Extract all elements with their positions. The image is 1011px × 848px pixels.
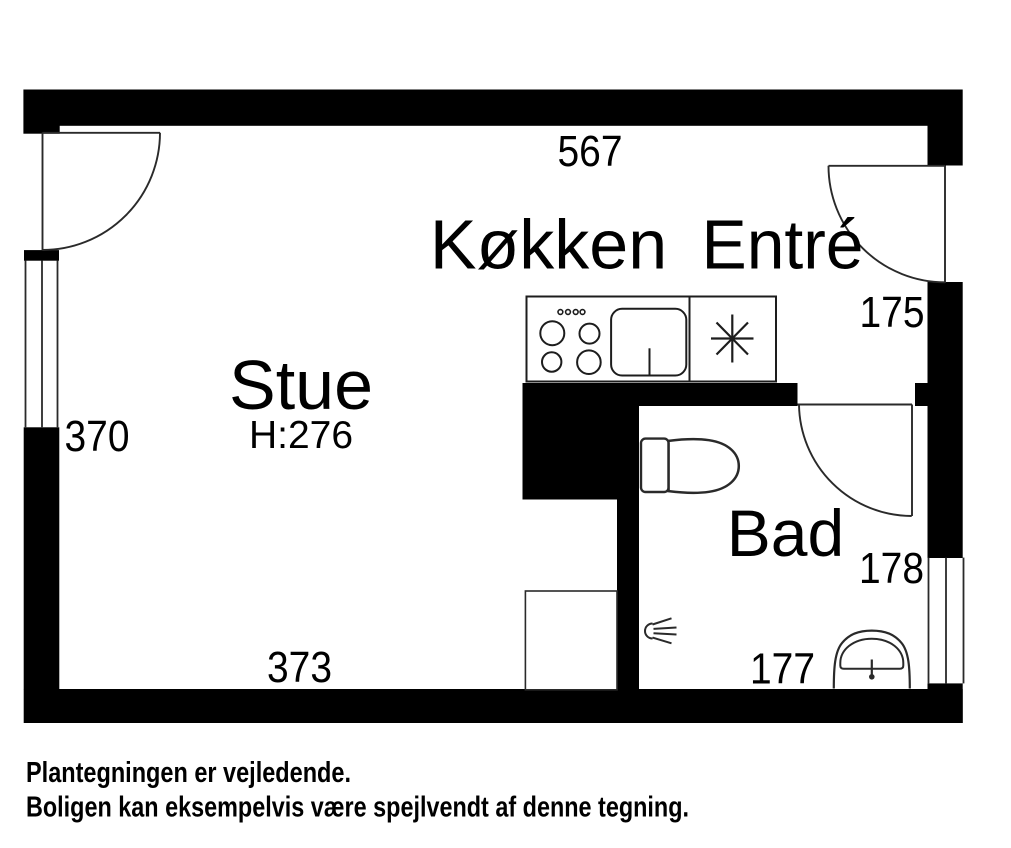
svg-text:177: 177: [750, 645, 815, 694]
svg-text:373: 373: [267, 643, 332, 692]
svg-text:Entré: Entré: [702, 206, 864, 284]
svg-text:Boligen kan eksempelvis være s: Boligen kan eksempelvis være spejlvendt …: [26, 792, 689, 824]
svg-text:178: 178: [859, 544, 924, 593]
svg-text:Stue: Stue: [229, 346, 373, 424]
svg-text:H:276: H:276: [249, 414, 353, 457]
svg-text:567: 567: [558, 127, 623, 176]
svg-text:175: 175: [860, 288, 925, 337]
svg-text:Plantegningen er vejledende.: Plantegningen er vejledende.: [26, 757, 351, 789]
svg-text:370: 370: [65, 412, 130, 461]
svg-text:Køkken: Køkken: [430, 206, 667, 284]
svg-text:Bad: Bad: [727, 496, 844, 570]
